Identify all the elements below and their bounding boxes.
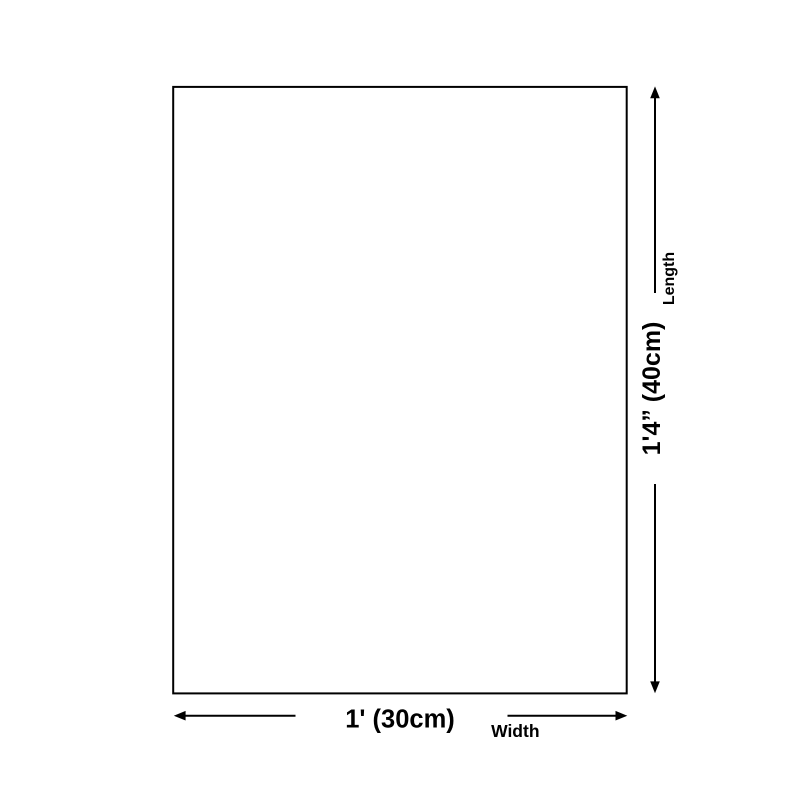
svg-text:Length: Length [661, 252, 678, 305]
svg-text:1' (30cm): 1' (30cm) [345, 706, 455, 734]
svg-text:1'4” (40cm): 1'4” (40cm) [638, 322, 666, 456]
svg-text:Width: Width [491, 721, 539, 741]
